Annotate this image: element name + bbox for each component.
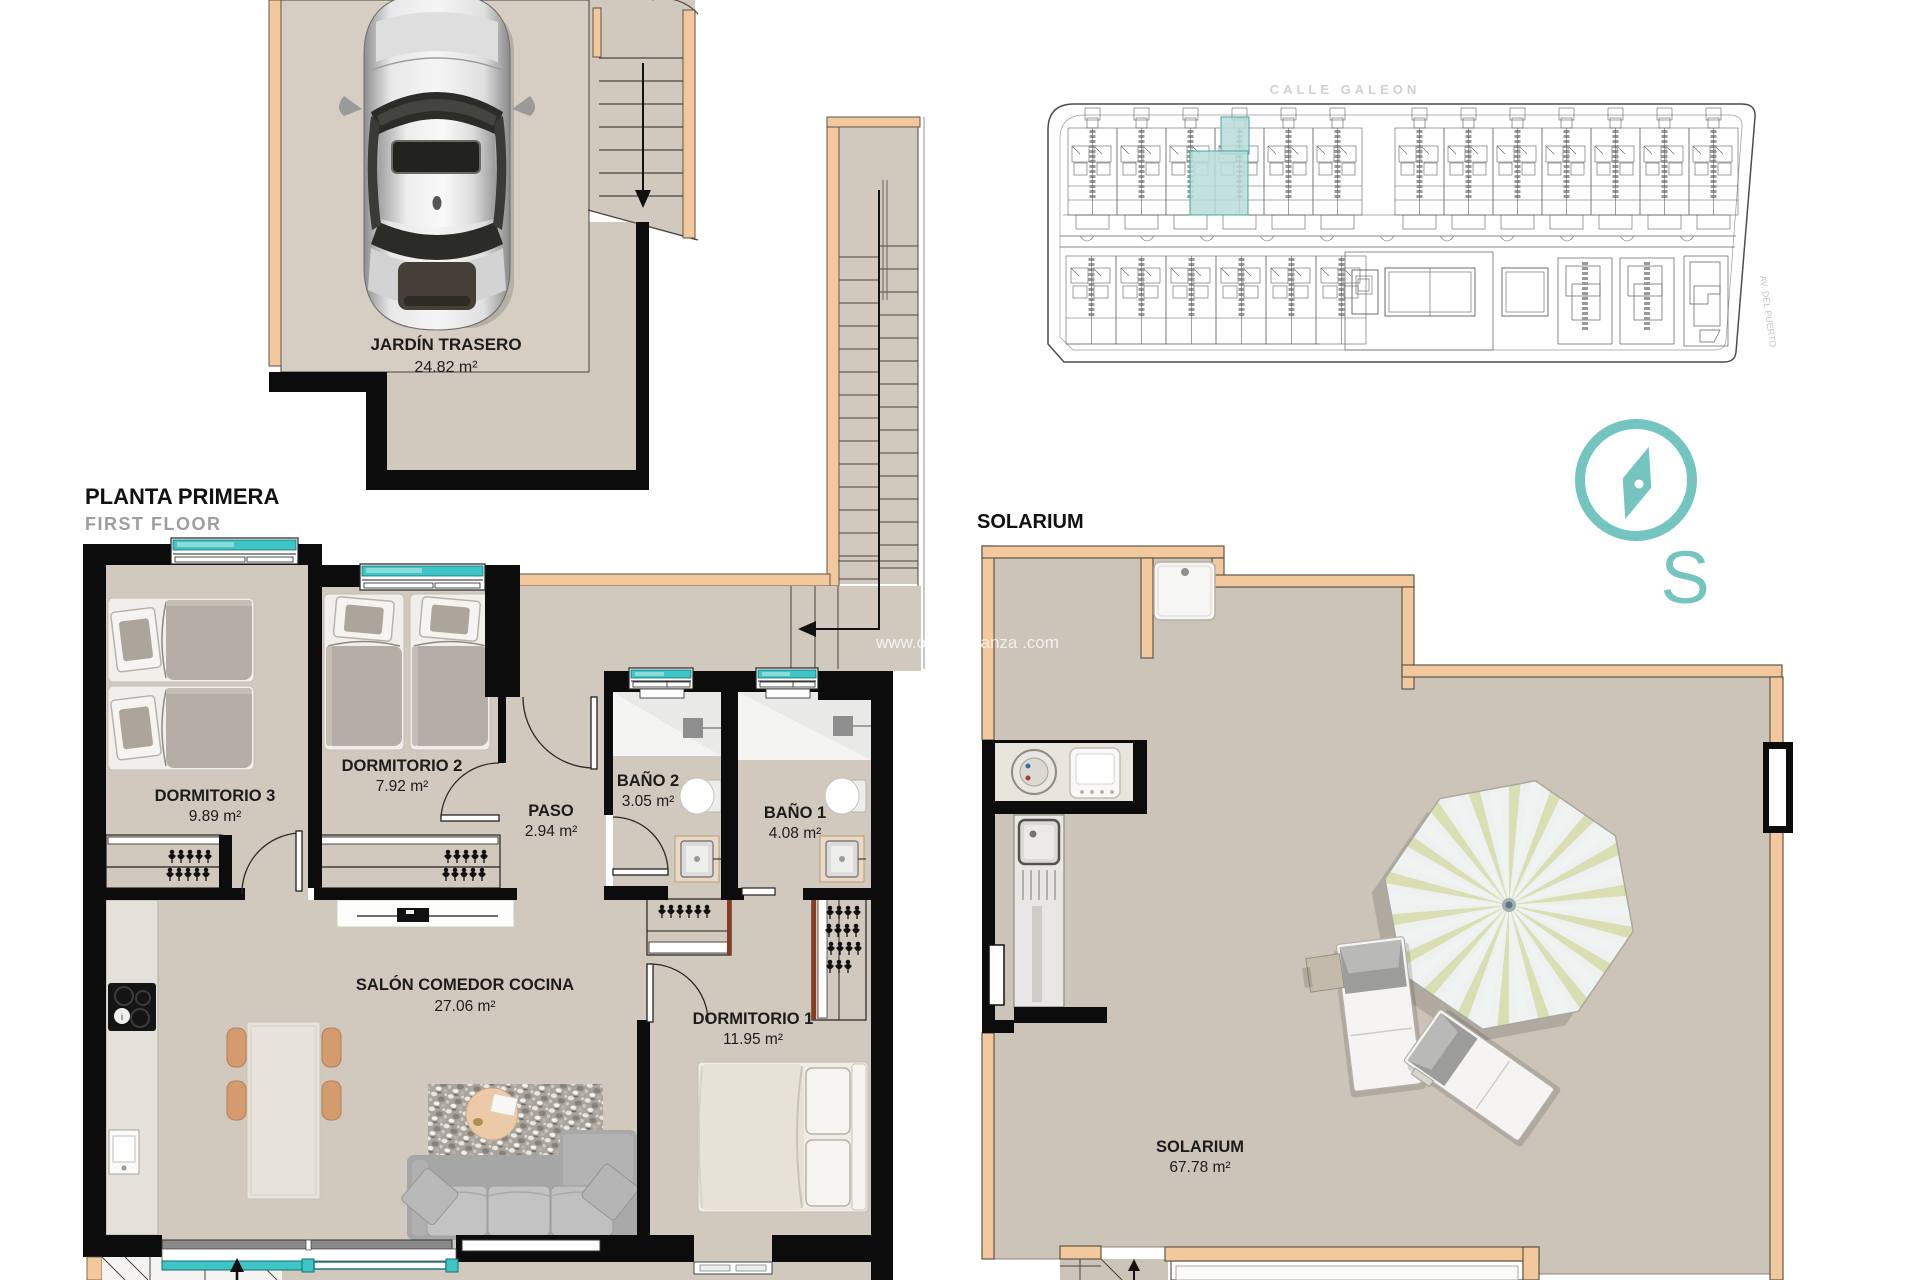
svg-text:CALLE GALEON: CALLE GALEON [1270, 82, 1421, 97]
svg-text:PASO: PASO [528, 802, 574, 820]
svg-text:DORMITORIO 2: DORMITORIO 2 [342, 757, 463, 775]
svg-text:DORMITORIO 3: DORMITORIO 3 [155, 787, 276, 805]
svg-text:vanza .com: vanza .com [972, 633, 1059, 652]
svg-text:24.82 m²: 24.82 m² [414, 359, 478, 376]
svg-text:DORMITORIO 1: DORMITORIO 1 [693, 1010, 814, 1028]
svg-text:7.92 m²: 7.92 m² [376, 778, 429, 795]
svg-text:SOLARIUM: SOLARIUM [1156, 1138, 1244, 1156]
svg-text:27.06 m²: 27.06 m² [434, 998, 495, 1015]
svg-text:PLANTA PRIMERA: PLANTA PRIMERA [85, 484, 279, 509]
svg-text:SOLARIUM: SOLARIUM [977, 511, 1084, 533]
svg-text:9.89 m²: 9.89 m² [189, 808, 242, 825]
svg-text:FIRST FLOOR: FIRST FLOOR [85, 514, 222, 534]
svg-text:2.94 m²: 2.94 m² [525, 823, 578, 840]
svg-text:4.08 m²: 4.08 m² [769, 825, 822, 842]
svg-text:BAÑO 1: BAÑO 1 [764, 802, 826, 822]
svg-text:www.o: www.o [875, 633, 926, 652]
svg-text:JARDÍN TRASERO: JARDÍN TRASERO [370, 335, 521, 354]
svg-text:SALÓN COMEDOR COCINA: SALÓN COMEDOR COCINA [356, 975, 574, 994]
svg-text:11.95 m²: 11.95 m² [723, 1031, 783, 1048]
svg-text:S: S [1660, 536, 1709, 619]
svg-text:3.05 m²: 3.05 m² [622, 793, 675, 810]
svg-text:BAÑO 2: BAÑO 2 [617, 770, 679, 790]
svg-text:i: i [121, 1012, 123, 1022]
svg-text:67.78 m²: 67.78 m² [1169, 1159, 1230, 1176]
